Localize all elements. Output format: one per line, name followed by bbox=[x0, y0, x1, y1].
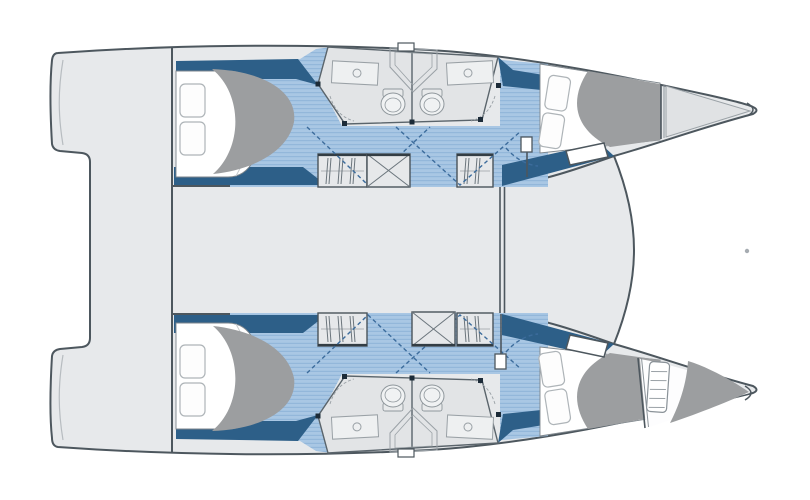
deck-plan-svg bbox=[0, 0, 810, 500]
forestay-fitting bbox=[745, 249, 749, 253]
crossed-locker-box bbox=[367, 154, 410, 187]
forepeak-berth bbox=[638, 358, 750, 428]
bow-locker-triangle bbox=[666, 86, 750, 137]
crossed-locker-box bbox=[412, 312, 455, 346]
catamaran-floor-plan bbox=[0, 0, 810, 500]
lower-hull bbox=[174, 312, 751, 457]
upper-hull bbox=[174, 43, 753, 187]
